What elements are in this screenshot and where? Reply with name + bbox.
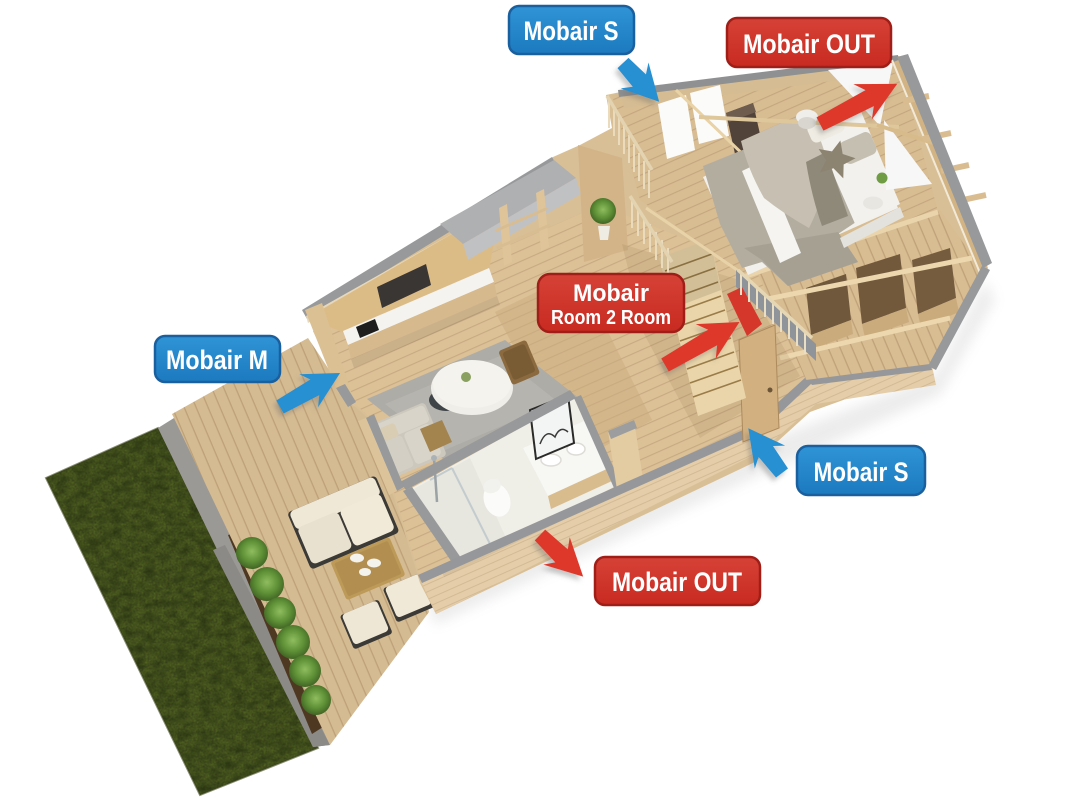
svg-text:Mobair M: Mobair M [166, 345, 268, 375]
svg-text:Mobair S: Mobair S [524, 16, 619, 46]
svg-text:Mobair OUT: Mobair OUT [612, 567, 742, 597]
svg-text:Mobair S: Mobair S [814, 457, 909, 487]
svg-text:Mobair OUT: Mobair OUT [743, 29, 875, 59]
svg-text:Mobair: Mobair [573, 280, 649, 307]
svg-text:Room 2 Room: Room 2 Room [551, 307, 671, 329]
